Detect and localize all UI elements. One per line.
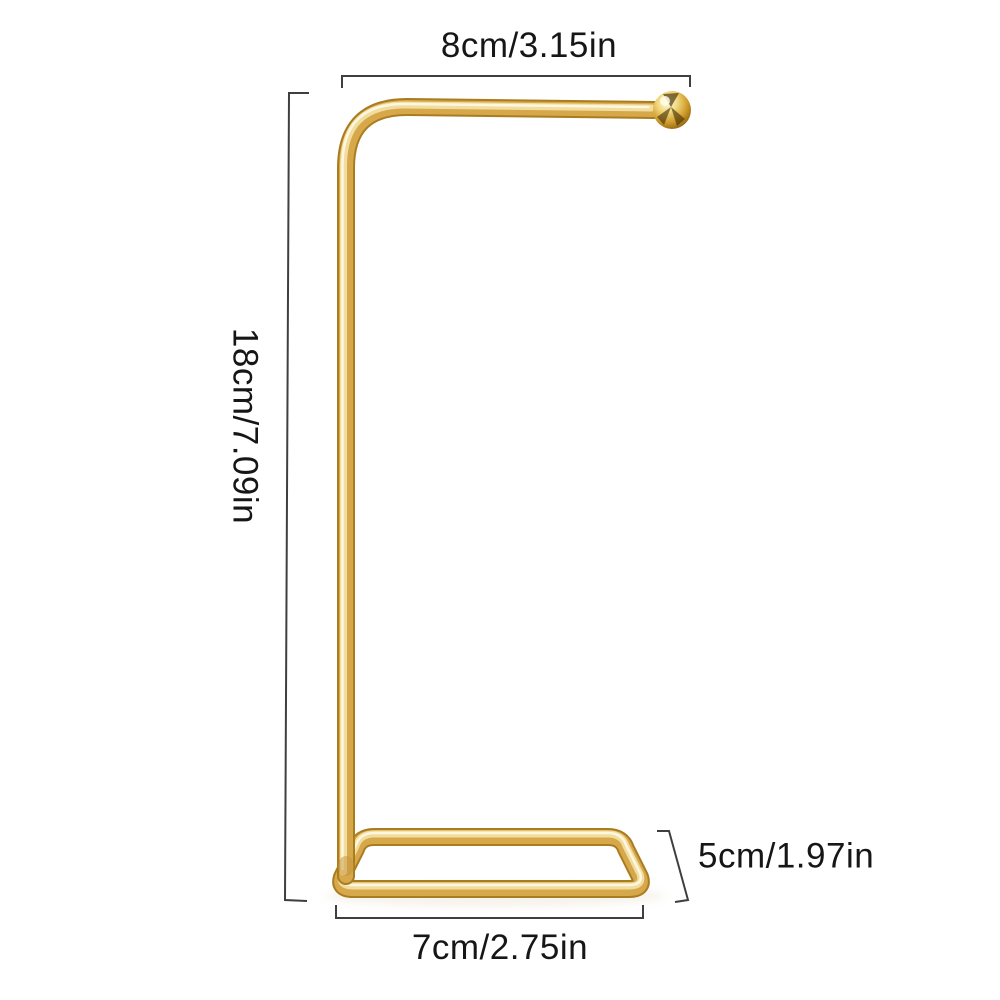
product-dimension-diagram: 8cm/3.15in 18cm/7.09in 7cm/2.75in 5cm/1.… (0, 0, 1000, 1000)
dimension-line-height (285, 93, 309, 901)
stand-ball-finial (653, 91, 691, 129)
dimension-label-base-width: 7cm/2.75in (412, 930, 588, 965)
dimension-line-base-depth (657, 831, 688, 902)
dimension-label-top-width: 8cm/3.15in (441, 28, 617, 63)
dimension-line-top-width (342, 76, 690, 88)
stand-base (341, 833, 641, 889)
dimension-label-height: 18cm/7.09in (228, 328, 263, 524)
pole-base-weld (338, 856, 354, 876)
dimension-label-base-depth: 5cm/1.97in (698, 839, 874, 874)
stand-pole-and-top-bar (343, 104, 655, 876)
